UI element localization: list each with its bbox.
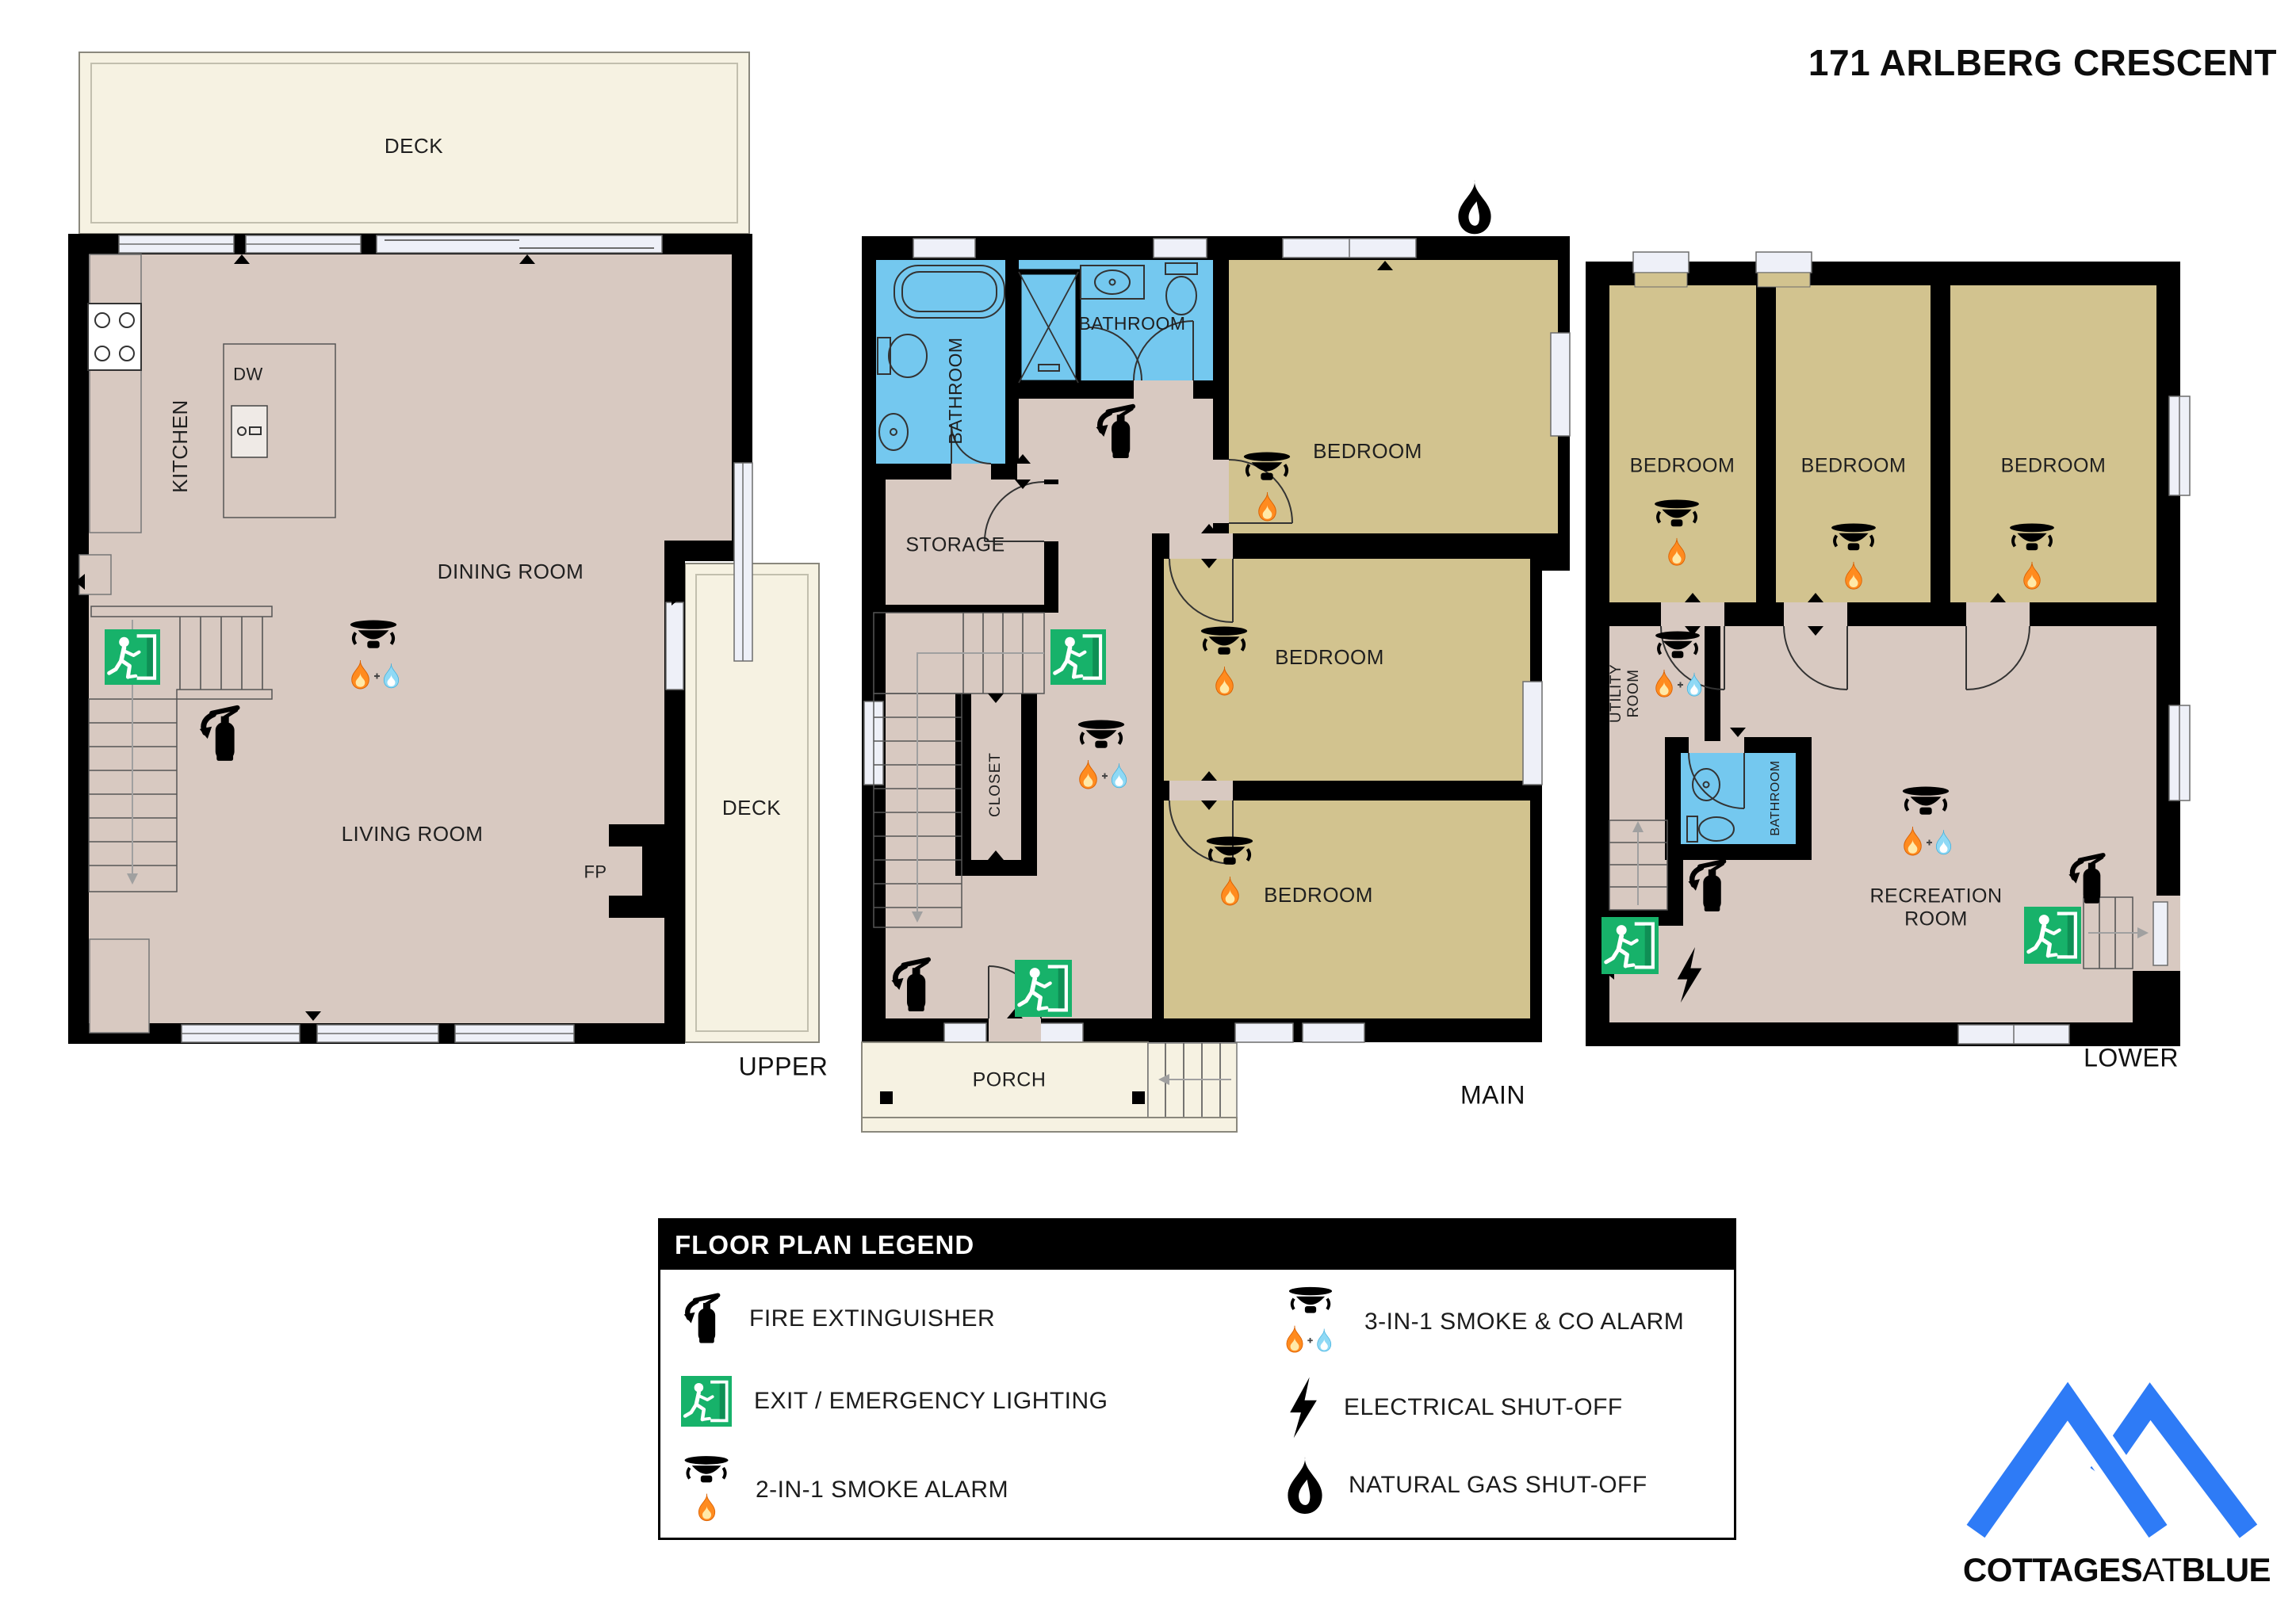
floor-label-lower: LOWER xyxy=(2084,1044,2179,1073)
room-label-bedroom-bottom: BEDROOM xyxy=(1264,884,1373,908)
floorplan-lower-drawing xyxy=(1586,262,2220,1078)
exit-emergency-lighting-icon xyxy=(2024,907,2081,964)
exit-emergency-lighting-icon xyxy=(105,629,160,685)
legend-label: ELECTRICAL SHUT-OFF xyxy=(1344,1394,1623,1421)
legend-title: FLOOR PLAN LEGEND xyxy=(660,1230,974,1260)
room-label-kitchen: KITCHEN xyxy=(169,399,193,493)
exit-emergency-lighting-icon xyxy=(1601,917,1659,974)
cottages-at-blue-logo: COTTAGESATBLUE xyxy=(1942,1328,2291,1589)
floor-label-main: MAIN xyxy=(1460,1081,1525,1110)
room-bedroom-top xyxy=(1229,260,1558,533)
recreation-line1: RECREATION xyxy=(1869,885,2002,907)
room-label-bathroom-left: BATHROOM xyxy=(945,337,966,444)
natural-gas-shutoff-icon xyxy=(1458,180,1490,235)
kitchen-cabinet xyxy=(90,939,149,1033)
room-label-deck-right: DECK xyxy=(722,797,781,820)
room-bedroom-center xyxy=(1776,285,1931,602)
room-label-bedroom-top: BEDROOM xyxy=(1313,440,1422,464)
logo-text-at: AT xyxy=(2142,1551,2182,1588)
fire-extinguisher-icon xyxy=(683,1290,727,1347)
utility-line2: ROOM xyxy=(1625,669,1642,717)
room-bedroom-right xyxy=(1950,285,2156,602)
room-label-dining: DINING ROOM xyxy=(438,560,584,584)
floor-label-upper: UPPER xyxy=(739,1053,828,1082)
smoke-co-alarm-3in1-icon xyxy=(1279,1286,1342,1358)
room-label-recreation: RECREATION ROOM xyxy=(1869,885,2002,930)
room-label-bedroom-left: BEDROOM xyxy=(1630,455,1735,478)
floor-plan-legend: FLOOR PLAN LEGEND FIRE EXTINGUISHER EXIT… xyxy=(658,1218,1736,1540)
legend-item-3in1-alarm: 3-IN-1 SMOKE & CO ALARM xyxy=(1279,1286,1684,1358)
legend-label: EXIT / EMERGENCY LIGHTING xyxy=(754,1388,1108,1415)
legend-item-electrical-shutoff: ELECTRICAL SHUT-OFF xyxy=(1285,1376,1623,1439)
room-label-bedroom-middle: BEDROOM xyxy=(1275,646,1384,670)
recreation-line2: ROOM xyxy=(1904,908,1968,930)
kitchen-counter xyxy=(90,254,141,533)
room-label-porch: PORCH xyxy=(973,1069,1047,1092)
room-bedroom-middle xyxy=(1164,559,1530,781)
legend-label: 2-IN-1 SMOKE ALARM xyxy=(756,1477,1008,1504)
exit-emergency-lighting-icon xyxy=(1050,629,1106,685)
room-label-bedroom-center: BEDROOM xyxy=(1801,455,1907,478)
legend-item-fire-extinguisher: FIRE EXTINGUISHER xyxy=(683,1290,995,1347)
room-bathroom-left xyxy=(876,260,1005,464)
floorplan-main: BATHROOM BATHROOM BEDROOM BEDROOM BEDROO… xyxy=(860,103,1586,1157)
room-label-storage: STORAGE xyxy=(905,534,1004,557)
logo-wordmark: COTTAGESATBLUE xyxy=(1963,1551,2271,1589)
legend-item-gas-shutoff: NATURAL GAS SHUT-OFF xyxy=(1284,1455,1647,1515)
room-bedroom-bottom xyxy=(1164,801,1530,1018)
electrical-shutoff-icon xyxy=(1285,1376,1322,1439)
room-label-living: LIVING ROOM xyxy=(342,823,484,846)
floorplan-lower: BEDROOM BEDROOM BEDROOM UTILITY ROOM BAT… xyxy=(1586,262,2220,1078)
legend-item-2in1-alarm: 2-IN-1 SMOKE ALARM xyxy=(681,1455,1008,1525)
floorplan-upper: DECK KITCHEN DW DINING ROOM LIVING ROOM … xyxy=(44,48,828,1090)
exit-emergency-lighting-icon xyxy=(1015,960,1072,1017)
room-label-bedroom-right: BEDROOM xyxy=(2001,455,2107,478)
room-label-utility: UTILITY ROOM xyxy=(1608,664,1643,723)
floorplan-main-drawing xyxy=(860,103,1586,1157)
legend-label: FIRE EXTINGUISHER xyxy=(749,1305,995,1332)
utility-line1: UTILITY xyxy=(1608,664,1624,723)
logo-text-blue: BLUE xyxy=(2182,1551,2271,1588)
natural-gas-shutoff-icon xyxy=(1284,1455,1326,1515)
room-label-dw: DW xyxy=(233,364,263,384)
page-title: 171 ARLBERG CRESCENT xyxy=(1808,41,2277,84)
floorplan-upper-drawing xyxy=(44,48,828,1090)
room-label-closet: CLOSET xyxy=(987,752,1004,817)
logo-text-cottages: COTTAGES xyxy=(1963,1551,2142,1588)
exit-emergency-lighting-icon xyxy=(681,1376,732,1427)
smoke-alarm-2in1-icon xyxy=(681,1455,733,1525)
stair-rail xyxy=(91,606,272,617)
legend-label: NATURAL GAS SHUT-OFF xyxy=(1349,1472,1647,1499)
legend-header: FLOOR PLAN LEGEND xyxy=(660,1221,1734,1270)
legend-item-exit-lighting: EXIT / EMERGENCY LIGHTING xyxy=(681,1376,1108,1427)
room-label-deck-top: DECK xyxy=(385,135,443,159)
stove xyxy=(88,304,141,370)
room-label-fp: FP xyxy=(584,862,607,881)
room-label-bathroom-right: BATHROOM xyxy=(1078,313,1185,334)
room-label-bathroom-lower: BATHROOM xyxy=(1769,760,1783,835)
legend-label: 3-IN-1 SMOKE & CO ALARM xyxy=(1364,1309,1684,1336)
logo-mountains-icon xyxy=(1942,1328,2291,1549)
